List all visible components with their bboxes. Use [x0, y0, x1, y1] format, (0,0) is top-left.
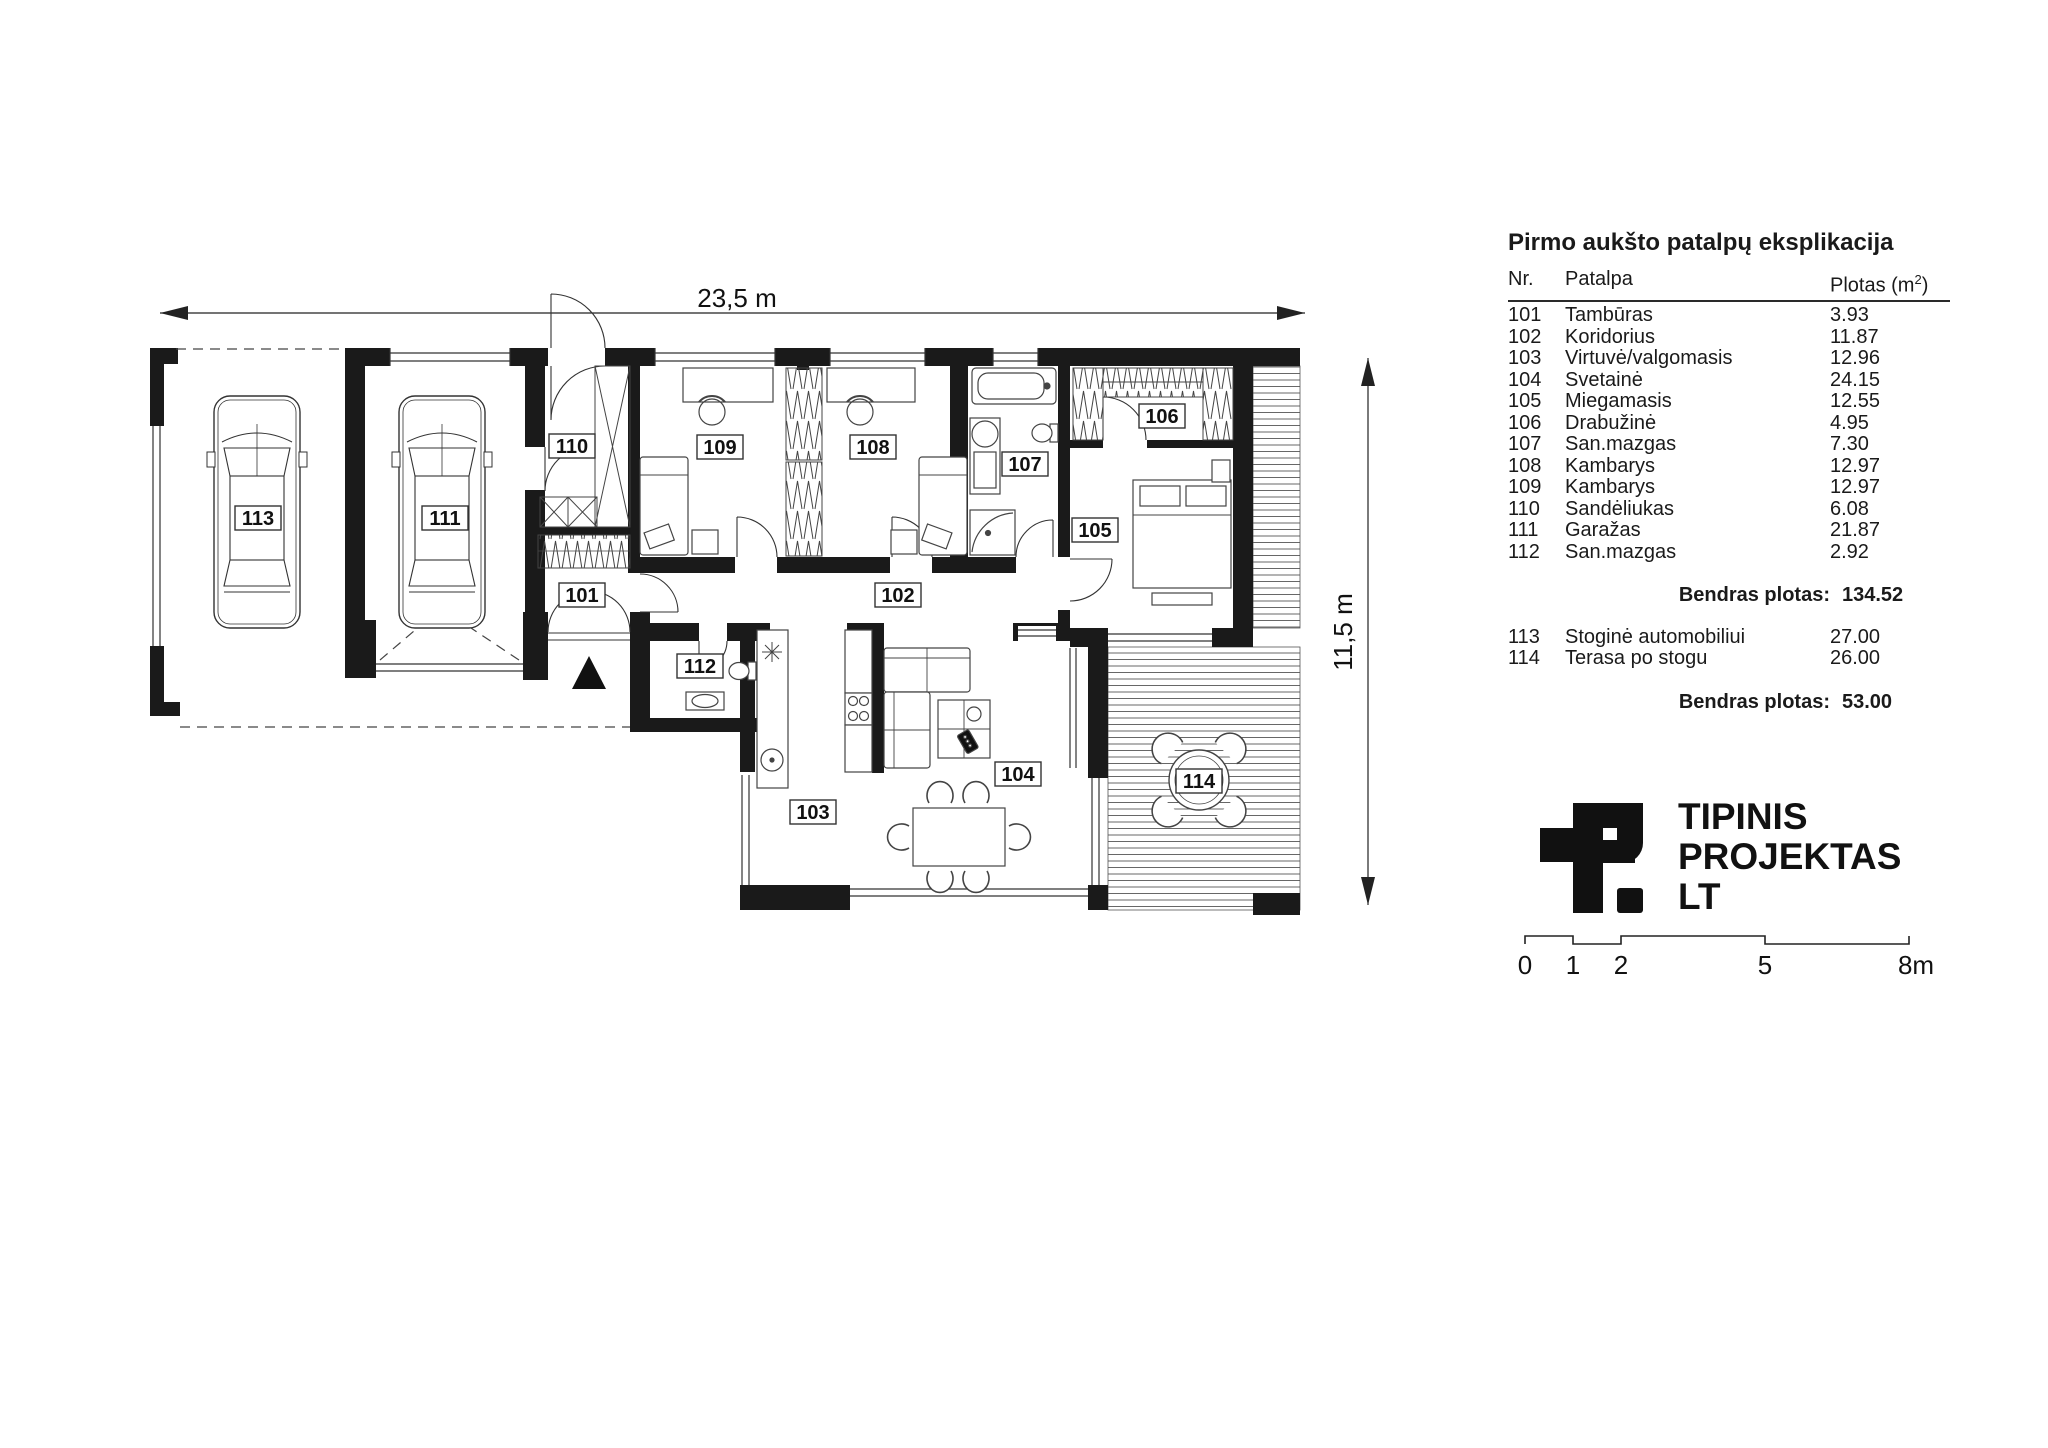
dimension-height [1361, 358, 1375, 905]
dimension-width-label: 23,5 m [697, 283, 777, 313]
room-label-114: 114 [1176, 769, 1222, 793]
legend-row: 102Koridorius11.87 [1508, 327, 1950, 349]
room-label-104: 104 [995, 762, 1041, 786]
room-label-101: 101 [559, 583, 605, 607]
legend-title: Pirmo aukšto patalpų eksplikacija [1508, 230, 1950, 256]
entrance-arrow-icon [572, 656, 606, 689]
logo-line: PROJEKTAS [1678, 837, 1901, 877]
svg-text:113: 113 [242, 508, 274, 530]
svg-text:114: 114 [1183, 771, 1216, 793]
svg-text:5: 5 [1758, 950, 1772, 980]
room-label-110: 110 [549, 434, 595, 458]
svg-text:111: 111 [429, 508, 460, 530]
total-area-row-2: Bendras plotas: 53.00 [1508, 692, 1950, 714]
legend-row: 108Kambarys12.97 [1508, 456, 1950, 478]
svg-text:112: 112 [684, 656, 716, 678]
col-nr: Nr. [1508, 269, 1565, 297]
room-label-111: 111 [422, 506, 468, 530]
shower-icon [970, 510, 1015, 555]
room-label-106: 106 [1139, 404, 1185, 428]
svg-text:102: 102 [881, 585, 914, 607]
legend-row: 101Tambūras3.93 [1508, 305, 1950, 327]
svg-text:103: 103 [796, 802, 829, 824]
dining-table-icon [888, 782, 1031, 893]
svg-text:104: 104 [1001, 764, 1035, 786]
dimension-height-label: 11,5 m [1328, 593, 1358, 671]
toilet-icon [729, 663, 749, 680]
svg-text:0: 0 [1518, 950, 1532, 980]
room-108-furniture [827, 368, 967, 555]
logo-line: TIPINIS [1678, 797, 1901, 837]
kitchen-103-furniture [757, 630, 872, 788]
room-109-furniture [640, 368, 773, 555]
coffee-table-icon [938, 700, 990, 758]
legend-row: 103Virtuvė/valgomasis12.96 [1508, 348, 1950, 370]
legend-row: 105Miegamasis12.55 [1508, 391, 1950, 413]
legend-row: 111Garažas21.87 [1508, 520, 1950, 542]
logo-line: LT [1678, 877, 1901, 917]
legend-row: 109Kambarys12.97 [1508, 477, 1950, 499]
logo-text: TIPINIS PROJEKTAS LT [1678, 797, 1901, 917]
svg-text:101: 101 [565, 585, 598, 607]
legend-row: 112San.mazgas2.92 [1508, 542, 1950, 564]
svg-text:108: 108 [856, 437, 889, 459]
room-labels: 101 102 103 104 105 106 107 108 109 110 … [235, 404, 1222, 824]
svg-text:107: 107 [1008, 454, 1041, 476]
room-label-113: 113 [235, 506, 281, 530]
legend-panel: Pirmo aukšto patalpų eksplikacija Nr. Pa… [1508, 230, 1950, 713]
legend-header: Nr. Patalpa Plotas (m2) [1508, 269, 1950, 302]
svg-text:2: 2 [1614, 950, 1628, 980]
page: 23,5 m 11,5 m [0, 0, 2048, 1448]
garage-door [376, 664, 523, 671]
room-label-105: 105 [1072, 518, 1118, 542]
legend-row: 114Terasa po stogu26.00 [1508, 648, 1950, 670]
svg-text:1: 1 [1566, 950, 1580, 980]
wardrobe-hatch-109-108 [786, 368, 822, 556]
hob-symbol-icon [762, 642, 782, 662]
wardrobe-hatch-101 [538, 535, 630, 568]
room-label-102: 102 [875, 583, 921, 607]
col-area: Plotas (m2) [1830, 269, 1950, 297]
legend-row: 106Drabužinė4.95 [1508, 413, 1950, 435]
room-label-103: 103 [790, 800, 836, 824]
toilet-icon [1032, 424, 1052, 442]
room-label-109: 109 [697, 435, 743, 459]
legend-row: 110Sandėliukas6.08 [1508, 499, 1950, 521]
room-label-112: 112 [677, 654, 723, 678]
col-name: Patalpa [1565, 269, 1830, 297]
svg-text:106: 106 [1145, 406, 1178, 428]
svg-text:109: 109 [703, 437, 736, 459]
logo-glyph [1540, 803, 1643, 913]
extra-rows: 113Stoginė automobiliui27.00 114Terasa p… [1508, 627, 1950, 670]
bedroom-105-furniture [1133, 460, 1231, 605]
legend-row: 113Stoginė automobiliui27.00 [1508, 627, 1950, 649]
room-label-108: 108 [850, 435, 896, 459]
legend-row: 104Svetainė24.15 [1508, 370, 1950, 392]
legend-row: 107San.mazgas7.30 [1508, 434, 1950, 456]
total-area-row: Bendras plotas: 134.52 [1508, 585, 1950, 607]
floor-plan-drawing: 23,5 m 11,5 m [0, 0, 2048, 1448]
scale-bar: 0 1 2 5 8m [1518, 936, 1934, 980]
room-label-107: 107 [1002, 452, 1048, 476]
tall-cabinet [845, 630, 872, 693]
svg-text:110: 110 [556, 436, 588, 458]
svg-text:105: 105 [1078, 520, 1111, 542]
svg-text:8m: 8m [1898, 950, 1934, 980]
